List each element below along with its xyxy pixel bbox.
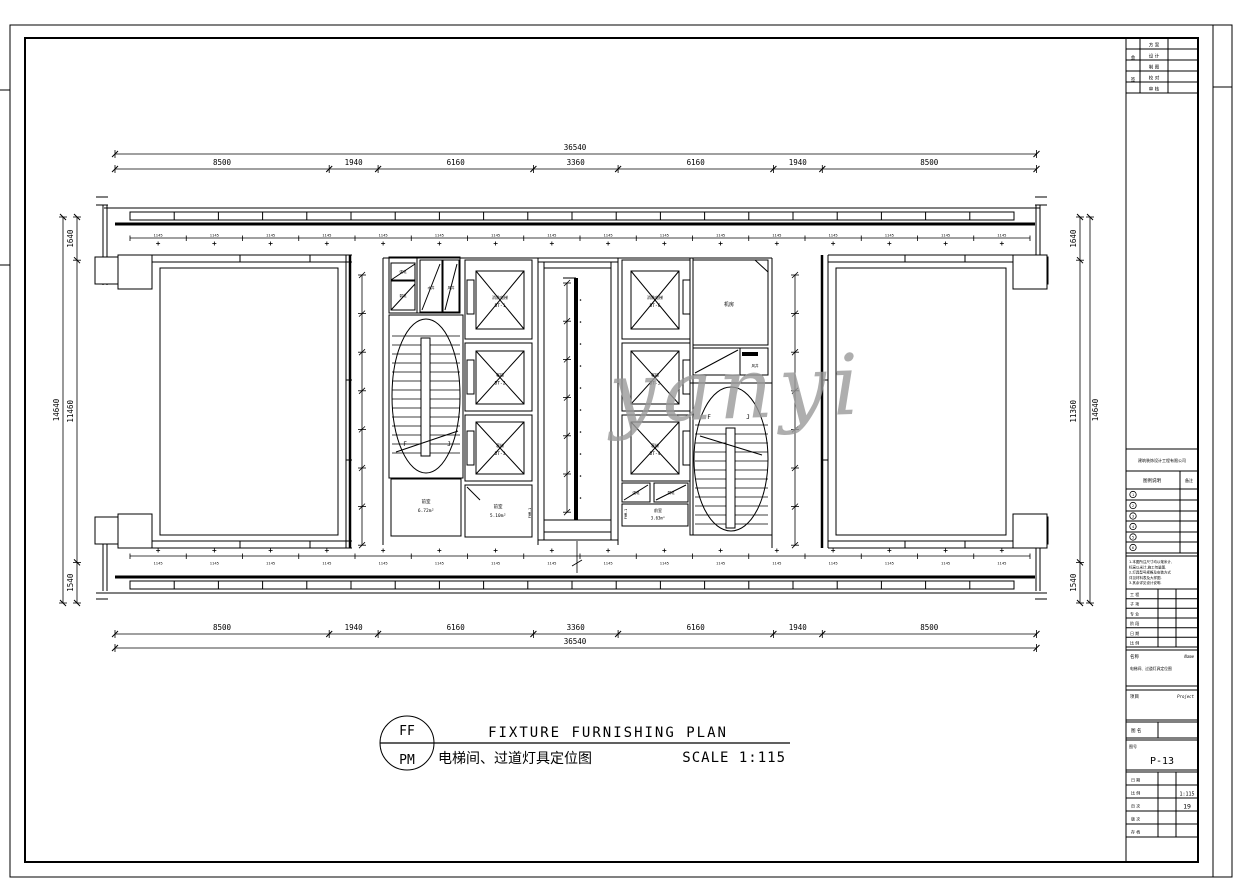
plan-label: 风井: [448, 285, 456, 290]
dot: [580, 453, 582, 455]
tb-note-line: 2.灯具型号规格及安装方式: [1129, 570, 1171, 575]
cad-drawing: 1145114511451145114511451145114511451145…: [0, 0, 1242, 883]
dim-seg-top: 1940: [789, 158, 808, 167]
elevator-label: 客梯: [651, 442, 659, 448]
watermark-text: yanyi: [603, 336, 866, 443]
elevator-door: [467, 431, 474, 465]
door-leaf: [467, 487, 480, 500]
plan-label: F: [403, 441, 407, 448]
dim-total-top: 36540: [564, 143, 587, 152]
tb-legend-header: 备注: [1185, 477, 1193, 483]
elevator-door: [683, 280, 690, 314]
plan-title-cn: 电梯间、过道灯具定位图: [438, 751, 592, 767]
plan-label: 6.72m²: [418, 508, 434, 514]
fixture-spacing-label: 1145: [379, 233, 388, 238]
fixture-spacing-label: 1145: [266, 233, 275, 238]
plan-label: 前室: [654, 507, 662, 513]
tb-number-label: 图号: [1129, 743, 1137, 749]
sheet-frame: [0, 25, 1232, 877]
door-tag: FHM-1: [528, 508, 532, 519]
plan-label: 5.10m²: [490, 513, 506, 519]
fixture-spacing-label: 1145: [604, 561, 613, 566]
plan-label: 水井: [428, 285, 436, 290]
legend-symbol-number: 2: [1132, 504, 1134, 508]
dot: [580, 431, 582, 433]
fixture-spacing-label: 1145: [266, 561, 275, 566]
tb-note-line: 1.本图所注尺寸均以毫米计,: [1129, 559, 1172, 564]
dim-seg-bottom: 6160: [687, 623, 706, 632]
dim-seg-right: 1540: [1069, 573, 1078, 592]
fixture-spacing-label: 1145: [660, 233, 669, 238]
column: [1013, 514, 1047, 548]
fixture-spacing-label: 1145: [997, 233, 1006, 238]
fixture-spacing-label: 1145: [885, 561, 894, 566]
sheet-titleblock: P-13 会签方 案设 计制 图校 对审 核建筑装饰设计工程有限公司图例说明备注…: [1126, 38, 1198, 862]
dim-seg-bottom: 6160: [447, 623, 466, 632]
elevator-door: [467, 280, 474, 314]
fixture-spacing-label: 1145: [829, 233, 838, 238]
fixture-spacing-label: 1145: [210, 233, 219, 238]
tb-project-label: 项目: [1130, 694, 1139, 700]
tb-info-row: 专 业: [1130, 610, 1139, 616]
dot: [580, 497, 582, 499]
legend-symbol-number: 3: [1132, 515, 1134, 519]
dot: [580, 365, 582, 367]
stamp-top-label: FF: [399, 724, 415, 739]
elevator-code: DT-3: [495, 451, 506, 457]
elevator-code: DT-2: [495, 381, 506, 387]
fixture-spacing-label: 1145: [435, 561, 444, 566]
elevator-code: DT-4: [650, 451, 661, 457]
plan-scale: SCALE 1:115: [682, 750, 786, 766]
tb-info-row: 阶 段: [1130, 620, 1139, 626]
door-tag: FHM-1: [624, 509, 628, 520]
tb-info-row: 子 项: [1130, 601, 1139, 607]
tb-info-row: 日 期: [1130, 630, 1139, 636]
plan-rect: [95, 257, 118, 284]
tb-name-value: 电梯间、过道灯具定位图: [1130, 666, 1172, 671]
dim-seg-right: 11360: [1069, 400, 1078, 423]
fixture-spacing-label: 1145: [547, 233, 556, 238]
fixture-spacing-label: 1145: [829, 561, 838, 566]
elevator-code: DT-1: [495, 303, 506, 309]
plan-label: 机房: [724, 301, 734, 308]
tb-bottom-label: 版 次: [1131, 816, 1140, 822]
plan-label: 前室: [494, 503, 503, 510]
drawing-number: P-13: [1150, 756, 1174, 767]
plan-label: 3.63m²: [651, 516, 665, 521]
fixture-spacing-label: 1145: [435, 233, 444, 238]
dim-seg-left: 1540: [66, 573, 75, 592]
room-outline: [391, 479, 461, 536]
tb-sign-row: 设 计: [1149, 53, 1160, 60]
room-outline: [160, 268, 338, 535]
tb-sign-row: 审 核: [1149, 86, 1160, 93]
fixture-spacing-label: 1145: [547, 561, 556, 566]
cad-sheet-page: 1145114511451145114511451145114511451145…: [0, 0, 1242, 883]
room-outline: [465, 485, 532, 537]
plan-label: 强电: [400, 269, 408, 274]
dim-seg-left: 1640: [66, 229, 75, 248]
tb-sign-row: 校 对: [1149, 75, 1160, 82]
tb-note-line: 详见材料表及大样图.: [1129, 575, 1162, 580]
fixture-spacing-label: 1145: [322, 561, 331, 566]
corner-cut: [755, 260, 768, 272]
plan-label: 弱电: [668, 490, 676, 495]
plan-label: 弱电: [400, 293, 408, 298]
dim-seg-top: 6160: [687, 158, 706, 167]
dot: [580, 299, 582, 301]
dim-seg-bottom: 1940: [345, 623, 364, 632]
plan-label: 前室: [422, 498, 431, 505]
dim-seg-top: 8500: [920, 158, 939, 167]
legend-symbol-number: 1: [1132, 493, 1134, 497]
tb-name-en: Name: [1183, 654, 1194, 659]
tb-bottom-label: 存 档: [1131, 829, 1140, 835]
tb-company: 建筑装饰设计工程有限公司: [1138, 457, 1186, 463]
elevator-label: 消防电梯: [647, 294, 663, 300]
tb-sign-row: 方 案: [1149, 42, 1160, 49]
fixture-spacing-label: 1145: [154, 233, 163, 238]
fixture-spacing-label: 1145: [379, 561, 388, 566]
dim-seg-bottom: 8500: [920, 623, 939, 632]
tb-info-row: 工 程: [1130, 591, 1139, 597]
fixture-spacing-label: 1145: [660, 561, 669, 566]
fixture-spacing-label: 1145: [491, 233, 500, 238]
dim-total-bottom: 36540: [564, 637, 587, 646]
stair-rail: [726, 428, 735, 528]
tb-bottom-label: 比 例: [1131, 790, 1140, 796]
elevator-label: 客梯: [496, 372, 504, 378]
elevator-label: 客梯: [496, 442, 504, 448]
plan-label: 签: [1131, 76, 1136, 83]
dot: [580, 409, 582, 411]
elevator-label: 消防电梯: [492, 294, 508, 300]
dim-seg-left: 11460: [66, 400, 75, 423]
plan-title-en: FIXTURE FURNISHING PLAN: [488, 725, 728, 741]
elevator-code: DT-6: [650, 303, 661, 309]
dim-seg-bottom: 1940: [789, 623, 808, 632]
column: [118, 255, 152, 289]
stamp-bottom-label: PM: [399, 753, 415, 768]
tb-name-label: 名称: [1130, 653, 1139, 660]
plan-label: J: [447, 441, 451, 448]
fixture-spacing-label: 1145: [772, 233, 781, 238]
tb-note-line: 3.其余详见设计说明.: [1129, 580, 1161, 585]
stair-rail: [421, 338, 430, 456]
tb-bottom-label: 日 期: [1131, 777, 1140, 783]
fixture-spacing-label: 1145: [772, 561, 781, 566]
fixture-spacing-label: 1145: [154, 561, 163, 566]
legend-symbol-number: 6: [1132, 546, 1134, 550]
dim-seg-bottom: 8500: [213, 623, 232, 632]
dim-seg-top: 8500: [213, 158, 232, 167]
dim-total-right: 14640: [1091, 398, 1100, 421]
elevator-door: [467, 360, 474, 394]
plan-rect: [95, 517, 118, 544]
plan-label: 强电: [633, 490, 641, 495]
tb-sheetname-label: 图 名: [1131, 727, 1141, 734]
tb-bottom-value: 1:115: [1179, 792, 1194, 798]
column: [1013, 255, 1047, 289]
drawing-title: FF PM FIXTURE FURNISHING PLAN 电梯间、过道灯具定位…: [380, 716, 790, 770]
dim-total-left: 14640: [52, 398, 61, 421]
dot: [580, 387, 582, 389]
legend-symbol-number: 4: [1132, 525, 1134, 529]
dot: [580, 475, 582, 477]
tb-project-en: Project: [1177, 694, 1194, 699]
tb-bottom-label: 页 次: [1131, 803, 1140, 809]
legend-symbol-number: 5: [1132, 536, 1134, 540]
dim-seg-top: 3360: [567, 158, 586, 167]
fixture-spacing-label: 1145: [716, 233, 725, 238]
fixture-spacing-label: 1145: [491, 561, 500, 566]
outer-border: [10, 25, 1232, 877]
dim-seg-top: 6160: [447, 158, 466, 167]
fixture-spacing-label: 1145: [941, 233, 950, 238]
tb-legend-header: 图例说明: [1143, 477, 1161, 484]
fixture-spacing-label: 1145: [885, 233, 894, 238]
tb-note-line: 标高以米计,施工勿量图.: [1129, 564, 1166, 569]
dim-seg-top: 1940: [345, 158, 364, 167]
dot: [580, 321, 582, 323]
tb-sign-row: 制 图: [1149, 64, 1160, 71]
fixture-spacing-label: 1145: [716, 561, 725, 566]
light-cove-strip: [574, 278, 578, 520]
tb-info-row: 比 例: [1130, 640, 1139, 646]
column: [118, 514, 152, 548]
fixture-spacing-label: 1145: [997, 561, 1006, 566]
dim-seg-right: 1640: [1069, 229, 1078, 248]
dim-seg-bottom: 3360: [567, 623, 586, 632]
plan-label: 会: [1131, 54, 1136, 61]
fixture-spacing-label: 1145: [322, 233, 331, 238]
dot: [580, 343, 582, 345]
fixture-spacing-label: 1145: [604, 233, 613, 238]
fixture-spacing-label: 1145: [210, 561, 219, 566]
tb-bottom-value: 19: [1183, 803, 1191, 811]
fixture-spacing-label: 1145: [941, 561, 950, 566]
floor-plan: 1145114511451145114511451145114511451145…: [95, 197, 1048, 599]
